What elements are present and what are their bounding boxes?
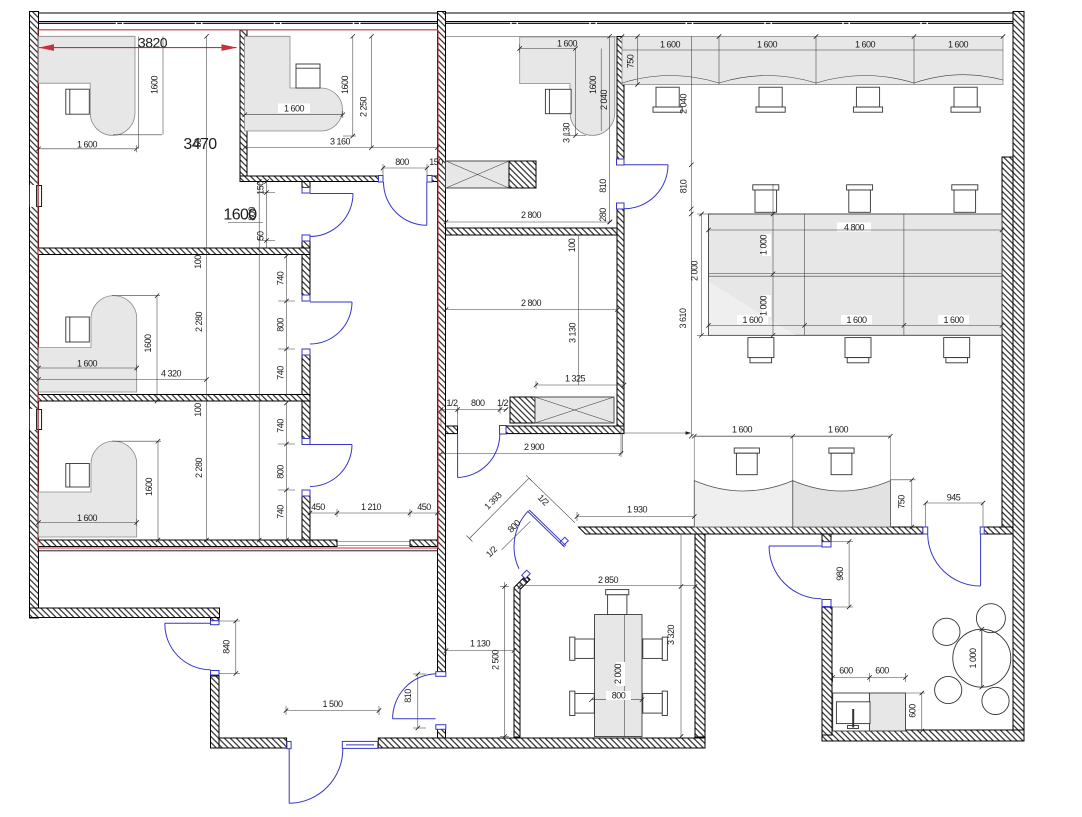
- svg-text:100: 100: [567, 238, 577, 252]
- svg-text:1600: 1600: [144, 477, 154, 496]
- svg-text:2 000: 2 000: [689, 260, 699, 281]
- svg-text:2 800: 2 800: [521, 298, 542, 308]
- svg-text:600: 600: [908, 704, 918, 718]
- svg-text:1600: 1600: [340, 75, 350, 94]
- svg-text:800: 800: [275, 318, 285, 332]
- svg-text:1 600: 1 600: [77, 513, 98, 523]
- svg-text:1 000: 1 000: [759, 234, 769, 255]
- svg-text:3820: 3820: [138, 35, 168, 51]
- svg-text:1 600: 1 600: [284, 104, 305, 114]
- svg-text:750: 750: [897, 495, 907, 509]
- svg-text:2 900: 2 900: [524, 442, 545, 452]
- svg-text:810: 810: [679, 179, 689, 193]
- svg-text:2 280: 2 280: [194, 311, 204, 332]
- svg-text:1 600: 1 600: [828, 425, 849, 435]
- svg-text:800: 800: [612, 691, 626, 701]
- svg-text:3 160: 3 160: [330, 137, 351, 147]
- svg-text:740: 740: [275, 271, 285, 285]
- svg-text:450: 450: [417, 502, 431, 512]
- svg-text:1 600: 1 600: [77, 359, 98, 369]
- svg-text:840: 840: [222, 640, 232, 654]
- svg-text:1600: 1600: [150, 75, 160, 94]
- svg-text:800: 800: [471, 398, 485, 408]
- svg-text:1/2: 1/2: [446, 398, 458, 408]
- svg-text:2 000: 2 000: [613, 663, 623, 684]
- svg-text:4 800: 4 800: [844, 223, 865, 233]
- svg-text:1 600: 1 600: [855, 40, 876, 50]
- svg-text:750: 750: [626, 54, 636, 68]
- svg-text:1600: 1600: [588, 75, 598, 94]
- svg-text:2 800: 2 800: [521, 210, 542, 220]
- svg-text:1600: 1600: [143, 334, 153, 353]
- svg-text:100: 100: [193, 255, 203, 269]
- svg-text:1 600: 1 600: [846, 315, 867, 325]
- svg-text:150: 150: [429, 157, 443, 167]
- svg-text:1 210: 1 210: [361, 502, 382, 512]
- svg-text:1 600: 1 600: [948, 40, 969, 50]
- svg-text:1/2: 1/2: [497, 398, 509, 408]
- svg-text:1 600: 1 600: [757, 40, 778, 50]
- svg-text:1 325: 1 325: [565, 374, 586, 384]
- svg-text:600: 600: [839, 666, 853, 676]
- svg-text:1 600: 1 600: [943, 315, 964, 325]
- svg-text:3 610: 3 610: [678, 308, 688, 329]
- svg-text:50: 50: [193, 138, 203, 148]
- svg-text:810: 810: [598, 179, 608, 193]
- svg-text:1 000: 1 000: [968, 648, 978, 669]
- svg-text:1 600: 1 600: [557, 39, 578, 49]
- svg-text:600: 600: [875, 666, 889, 676]
- svg-text:810: 810: [403, 689, 413, 703]
- svg-text:4 320: 4 320: [161, 369, 182, 379]
- svg-text:50: 50: [256, 231, 266, 241]
- svg-text:1 930: 1 930: [627, 505, 648, 515]
- svg-text:1 600: 1 600: [77, 139, 98, 149]
- svg-text:980: 980: [835, 567, 845, 581]
- svg-text:3 130: 3 130: [568, 322, 578, 343]
- svg-text:740: 740: [275, 505, 285, 519]
- svg-text:450: 450: [311, 502, 325, 512]
- svg-text:945: 945: [947, 493, 961, 503]
- svg-text:2 040: 2 040: [679, 93, 689, 114]
- svg-text:100: 100: [193, 403, 203, 417]
- svg-text:800: 800: [275, 465, 285, 479]
- svg-text:2 500: 2 500: [491, 649, 501, 670]
- svg-text:2 850: 2 850: [598, 575, 619, 585]
- svg-text:280: 280: [598, 208, 608, 222]
- svg-text:1 600: 1 600: [732, 425, 753, 435]
- svg-text:740: 740: [275, 419, 285, 433]
- svg-text:150: 150: [256, 181, 266, 195]
- svg-text:1 600: 1 600: [660, 40, 681, 50]
- svg-text:800: 800: [247, 207, 257, 221]
- svg-text:3 130: 3 130: [562, 122, 572, 143]
- svg-text:2 040: 2 040: [599, 89, 609, 110]
- svg-text:1 500: 1 500: [322, 699, 343, 709]
- svg-text:3 320: 3 320: [666, 624, 676, 645]
- svg-text:740: 740: [275, 366, 285, 380]
- svg-text:2 250: 2 250: [358, 96, 368, 117]
- svg-text:1 000: 1 000: [759, 295, 769, 316]
- svg-text:800: 800: [395, 157, 409, 167]
- svg-text:1 130: 1 130: [470, 639, 491, 649]
- svg-text:2 280: 2 280: [194, 457, 204, 478]
